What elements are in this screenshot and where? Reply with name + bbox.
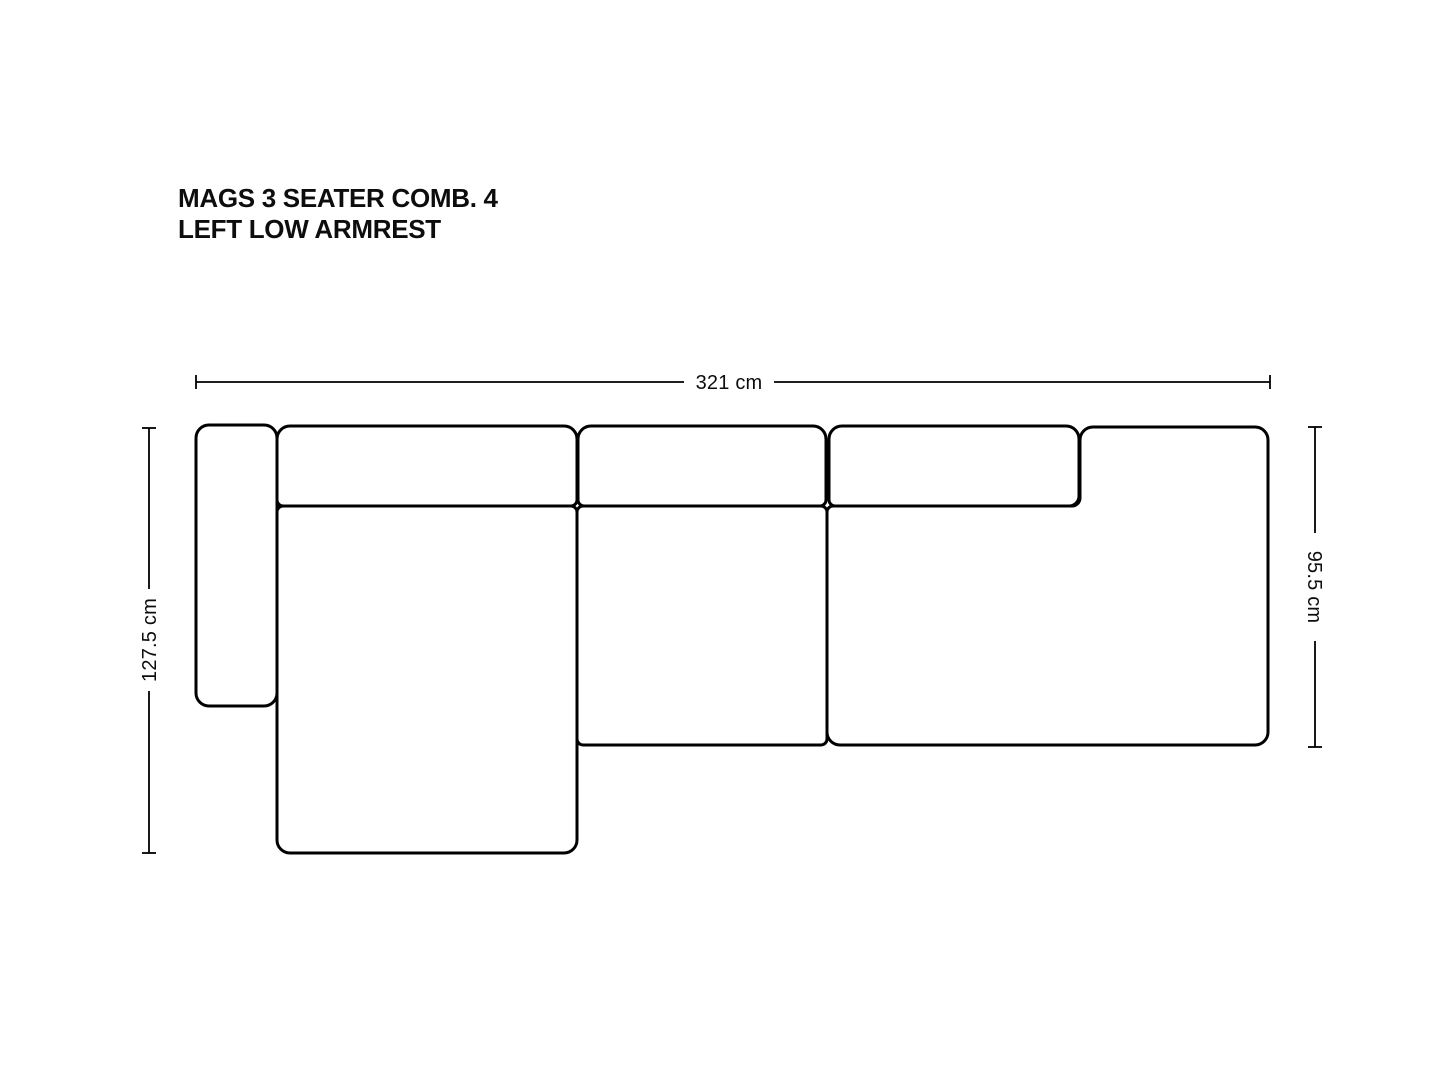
- middle-seat-module: [577, 506, 827, 745]
- back-cushion-right: [829, 426, 1079, 506]
- depth-dimension-label: 127.5 cm: [139, 598, 161, 682]
- back-cushion-middle: [578, 426, 826, 506]
- diagram-page: MAGS 3 SEATER COMB. 4 LEFT LOW ARMREST: [0, 0, 1445, 1087]
- width-dimension: 321 cm: [196, 372, 1270, 394]
- left-low-armrest: [196, 425, 277, 706]
- chaise-seat-module: [277, 506, 577, 853]
- seat-depth-dimension: 95.5 cm: [1303, 427, 1325, 747]
- depth-dimension: 127.5 cm: [139, 428, 161, 853]
- back-cushion-left: [277, 426, 577, 506]
- sofa-dimension-diagram: 321 cm 127.5 cm 95.5 cm: [0, 0, 1445, 1087]
- width-dimension-label: 321 cm: [696, 372, 763, 394]
- sofa-outline-group: [196, 425, 1268, 853]
- seat-depth-dimension-label: 95.5 cm: [1303, 551, 1325, 624]
